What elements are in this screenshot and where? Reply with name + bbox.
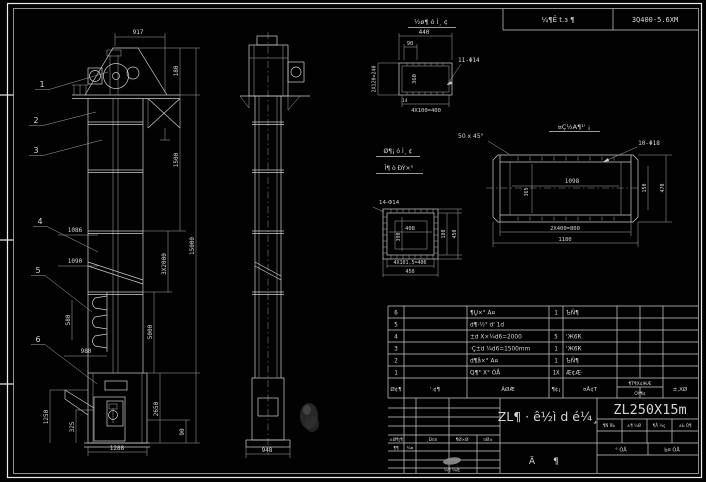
- beam-section-detail: ¤Ç½A¶¹' ¡ 50 x 45° 1098 365 10-Φ18: [458, 123, 672, 247]
- front-view-dimensions: 917 1086 1090 580 980 1250 325 1288 180 …: [43, 29, 200, 456]
- drawing-title: ZL¶ · ê½ì d é¼¸: [498, 409, 599, 424]
- bom-row-qty: 1X: [553, 371, 560, 377]
- dim-980: 980: [81, 348, 92, 355]
- dim-1090: 1090: [68, 258, 83, 265]
- stamp-char-b: ¶: [553, 457, 559, 467]
- rev-bottom-note: ¼¶ ¼Æ: [444, 468, 460, 473]
- title-cell-2: ±¶ ¼Ø: [627, 423, 641, 428]
- top-channel-section-detail: ½ø¶ ó Ì¸ ¢ 360 440 90 2X120=240 4X100=4: [372, 17, 481, 114]
- dim-450-right: 450: [452, 229, 458, 238]
- dim-1180: 1180: [558, 237, 571, 243]
- bom-row-no: 3: [394, 347, 398, 353]
- dim-3x2000: 3X2000: [161, 253, 168, 275]
- stamp-char-a: Ä: [529, 456, 536, 467]
- detail-square-label-2: Î¶ ò ÐÝ×°: [384, 165, 413, 172]
- rev-header-3: ¶Ø×Ø: [456, 437, 469, 442]
- dim-2x400: 2X400=800: [550, 226, 580, 232]
- bom-header-name: ÃØÆ: [501, 386, 514, 393]
- rev-cell-1: ¶¶: [393, 446, 399, 451]
- parts-list-table: 6 ¶Ų×° A¤ 1 ЪÑ¶ 5 d¶·½° d' 1d 4 ±d X×¼d6…: [388, 306, 698, 398]
- dim-360: 360: [412, 74, 418, 84]
- balloon-2: 2: [33, 116, 38, 125]
- bom-row-no: 1: [394, 371, 398, 377]
- rev-cell-2: ¼¤: [407, 446, 414, 451]
- rev-header-2: ¸Ð¤¤: [427, 437, 438, 442]
- dim-365: 365: [524, 187, 530, 196]
- stamp-bar: ¼¶Ê t.з ¶ 3Q400-5.6XM: [503, 9, 699, 31]
- balloon-1: 1: [39, 80, 44, 89]
- dim-1086: 1086: [68, 227, 83, 234]
- dim-390: 390: [396, 232, 402, 241]
- signature-label-2: Ь¤ ÓÅ: [664, 447, 680, 454]
- rev-header-4: ¤Ø±: [483, 437, 493, 442]
- bom-row-name: d¶·½° d' 1d: [470, 322, 504, 329]
- bom-row-no: 5: [394, 323, 398, 329]
- bom-row-name: d¶å×° A¤: [470, 358, 498, 365]
- title-cell-4: ±Ь Ò¶: [678, 423, 692, 428]
- signature-label-1: ° ÓÅ: [615, 447, 627, 454]
- title-cell-3: ¶Å ¼ç: [653, 423, 666, 428]
- balloon-5: 5: [35, 266, 40, 275]
- balloon-3: 3: [33, 146, 38, 155]
- signature-stamp-blob: [443, 456, 462, 465]
- dim-470: 470: [660, 183, 666, 192]
- dim-325: 325: [69, 421, 76, 432]
- dim-1500: 1500: [173, 152, 180, 167]
- bom-header-weight2: ÓÝ¶¢: [634, 390, 646, 397]
- balloon-4: 4: [37, 217, 42, 226]
- dim-15000: 15000: [189, 237, 196, 255]
- bom-row-material: 'Ж6Ҟ: [566, 335, 582, 341]
- title-cell-1: ¶Ñ ЯЬ: [603, 423, 616, 428]
- dim-4x100: 4X100=400: [411, 108, 441, 114]
- side-view: 948: [240, 32, 310, 458]
- dim-917: 917: [133, 29, 144, 36]
- dim-180: 180: [173, 65, 180, 76]
- bom-header-weight: ¶Т¶X¢ЖÆ: [628, 381, 651, 387]
- bom-row-material: Æ¢Æ·: [566, 371, 583, 377]
- callout-14-d14: 14-Φ14: [379, 200, 400, 206]
- detail-beam-label: ¤Ç½A¶¹' ¡: [558, 123, 591, 131]
- model-number: ZL250X15m: [613, 402, 686, 418]
- callout-11-d14: 11-Φ14: [458, 57, 480, 64]
- dim-2x120: 2X120=240: [372, 65, 378, 92]
- smudge-mark: [300, 403, 319, 432]
- dim-450-bottom: 450: [405, 269, 414, 275]
- bom-header-qty: ¶¢¡: [551, 387, 560, 393]
- bom-header-remark: ±,XØ: [673, 386, 688, 393]
- bom-row-material: ЪÑ¶: [566, 310, 579, 317]
- bom-row-no: 4: [394, 335, 398, 341]
- detail-top-label: ½ø¶ ó Ì¸ ¢: [414, 17, 448, 26]
- dim-1250: 1250: [43, 409, 50, 424]
- dim-5000: 5000: [147, 324, 154, 339]
- dim-1098: 1098: [565, 178, 580, 185]
- dim-14: 14: [402, 98, 408, 104]
- dim-150: 150: [642, 183, 648, 192]
- bom-row-name: Q¶° X° ÓÅ: [470, 370, 500, 377]
- drawing-frame: [0, 4, 702, 478]
- bom-row-qty: 5: [554, 335, 558, 341]
- dim-1288: 1288: [110, 445, 125, 452]
- bom-row-no: 6: [394, 311, 398, 317]
- dim-4x101: 4X101.5=406: [393, 260, 426, 266]
- bom-header-code: ' ¢¶: [430, 387, 440, 393]
- bom-header-material: ¤Å¢Т: [583, 386, 598, 393]
- drawing-code: 3Q400-5.6XM: [632, 16, 678, 24]
- square-flange-section-detail: Ø¶¡ ó Ì¸ ¢ Î¶ ò ÐÝ×° 14-Φ14 408: [373, 148, 462, 277]
- bom-row-qty: 1: [554, 359, 558, 365]
- bom-header-no: Ø¢¶: [390, 386, 401, 393]
- front-view: [65, 48, 180, 447]
- dim-408: 408: [405, 226, 415, 232]
- dim-2650: 2650: [153, 401, 160, 416]
- chamfer-note: 50 x 45°: [458, 133, 484, 140]
- bom-row-material: ЪÑ¶: [566, 358, 579, 365]
- bom-row-qty: 1: [554, 311, 558, 317]
- bom-row-no: 2: [394, 359, 398, 365]
- cad-drawing-canvas: ¼¶Ê t.з ¶ 3Q400-5.6XM: [0, 0, 706, 482]
- bom-row-name: ¶Ų×° A¤: [470, 311, 495, 317]
- dim-440: 440: [419, 29, 430, 36]
- dim-180-sq: 180: [441, 229, 447, 238]
- dim-580: 580: [65, 314, 72, 325]
- bom-row-name: ·Ç±d ¼d6=1500mm: [470, 347, 531, 353]
- detail-square-label-1: Ø¶¡ ó Ì¸ ¢: [384, 148, 413, 155]
- stamp-text: ¼¶Ê t.з ¶: [541, 15, 574, 24]
- dim-90-top: 90: [407, 41, 414, 47]
- rev-header-1: ±Ø¶¦¶: [389, 437, 403, 442]
- callout-10-d18: 10-Φ18: [638, 140, 660, 147]
- dim-948: 948: [262, 447, 273, 454]
- bom-row-material: 'Ж6Ҟ: [566, 347, 582, 353]
- dim-90: 90: [179, 428, 186, 436]
- balloon-6: 6: [35, 335, 40, 344]
- bom-row-qty: 1: [554, 347, 558, 353]
- bom-row-name: ±d X×¼d6=2000: [470, 335, 522, 341]
- title-block: ±Ø¶¦¶ ¸Ð¤¤ ¶Ø×Ø ¤Ø± ¶¶ ¼¤ ¼¶ ¼Æ ZL¶ · ê½…: [388, 398, 698, 473]
